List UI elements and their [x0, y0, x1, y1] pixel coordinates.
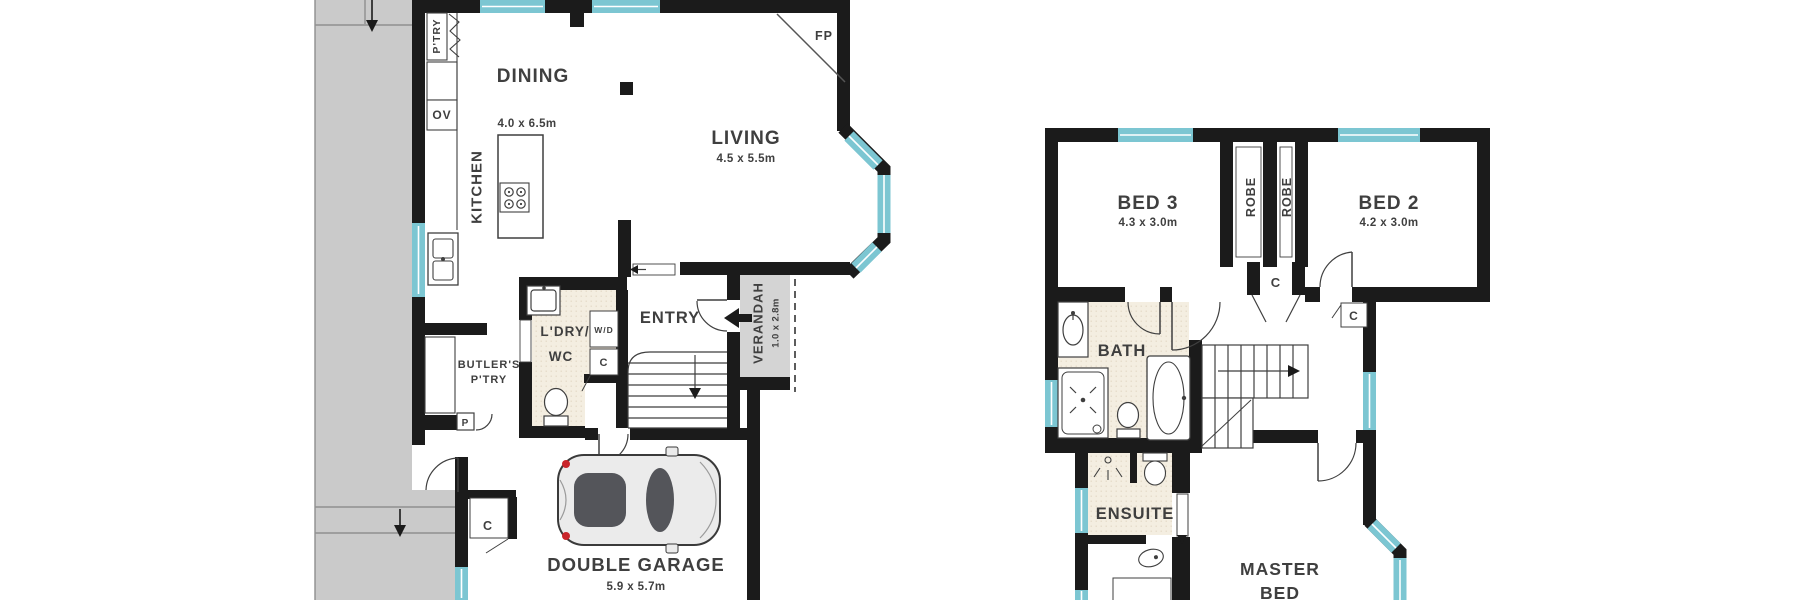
master-bed-line1: MASTER — [1240, 559, 1320, 579]
toilet-icon — [544, 389, 568, 427]
bed2-dims: 4.2 x 3.0m — [1360, 217, 1419, 229]
garage-dims: 5.9 x 5.7m — [607, 581, 666, 593]
ensuite-label: ENSUITE — [1096, 505, 1175, 523]
pantry-label: P'TRY — [431, 18, 443, 53]
butlers-pantry-line1: BUTLER'S — [458, 359, 521, 371]
laundry-label-line1: L'DRY/ — [540, 324, 589, 339]
entry-door-arc — [697, 300, 727, 331]
dining-dims: 4.0 x 6.5m — [498, 118, 557, 130]
cooktop-icon — [500, 183, 529, 212]
bed2-label: BED 2 — [1359, 193, 1420, 214]
stairs-ground — [628, 352, 727, 428]
vanity-sink-icon — [1058, 302, 1088, 357]
hall-cupboard-label: C — [1271, 275, 1281, 290]
robe-right-label: ROBE — [1280, 177, 1294, 217]
shower-icon — [1058, 368, 1108, 438]
floor-plan-page: P'TRY DINING 4.0 x 6.5m OV KITCHEN LIVIN… — [0, 0, 1800, 600]
butlers-bench — [425, 337, 455, 413]
bath-toilet-icon — [1117, 403, 1140, 439]
bed3-dims: 4.3 x 3.0m — [1119, 217, 1178, 229]
master-bed-line2: BED — [1260, 583, 1300, 600]
side-door-arc — [426, 458, 458, 492]
washer-dryer-label: W/D — [594, 325, 614, 335]
entry-label: ENTRY — [640, 309, 700, 327]
garage-label: DOUBLE GARAGE — [547, 554, 724, 575]
master-door-arc — [1318, 443, 1356, 481]
laundry-tub-icon — [527, 286, 560, 315]
car-icon — [558, 447, 720, 553]
ensuite-sliding-door — [1177, 494, 1188, 544]
robe-left-label: ROBE — [1244, 177, 1258, 217]
hall-cupboard-doors — [1252, 295, 1300, 322]
pantry-bifold-door — [449, 14, 460, 57]
floor-plan-drawing: P'TRY DINING 4.0 x 6.5m OV KITCHEN LIVIN… — [0, 0, 1800, 600]
dining-label: DINING — [497, 66, 570, 87]
bed2-door-arc — [1320, 252, 1352, 287]
bath-label: BATH — [1098, 342, 1147, 360]
upper-floor-plan: BED 3 4.3 x 3.0m BED 2 4.2 x 3.0m ROBE R… — [1045, 128, 1490, 600]
pantry-cupboard-label: P — [462, 418, 470, 429]
verandah-dims: 1.0 x 2.8m — [771, 298, 782, 347]
understair-cupboard-label: C — [600, 357, 609, 369]
living-label: LIVING — [711, 128, 780, 149]
oven-label: OV — [432, 108, 451, 122]
living-dims: 4.5 x 5.5m — [717, 153, 776, 165]
bed2-cupboard-label: C — [1349, 309, 1359, 323]
bed3-label: BED 3 — [1118, 193, 1179, 214]
butlers-pantry-line2: P'TRY — [471, 374, 508, 386]
laundry-door-opening — [520, 320, 531, 362]
bathtub-icon — [1147, 356, 1190, 440]
fireplace-label: FP — [815, 29, 833, 43]
fridge-space — [427, 62, 457, 100]
stair-down-arrow-icon — [689, 355, 701, 399]
garage-cupboard-label: C — [483, 519, 493, 533]
kitchen-label: KITCHEN — [469, 150, 486, 224]
threshold-step — [630, 264, 675, 275]
ground-floor-plan: P'TRY DINING 4.0 x 6.5m OV KITCHEN LIVIN… — [315, 0, 884, 600]
lower-fixture — [1113, 578, 1171, 600]
verandah-label: VERANDAH — [751, 282, 766, 364]
fireplace-line — [777, 14, 845, 82]
ensuite-toilet-icon — [1143, 453, 1167, 485]
wir-sink-icon — [1137, 547, 1166, 570]
laundry-label-line2: WC — [549, 349, 574, 364]
